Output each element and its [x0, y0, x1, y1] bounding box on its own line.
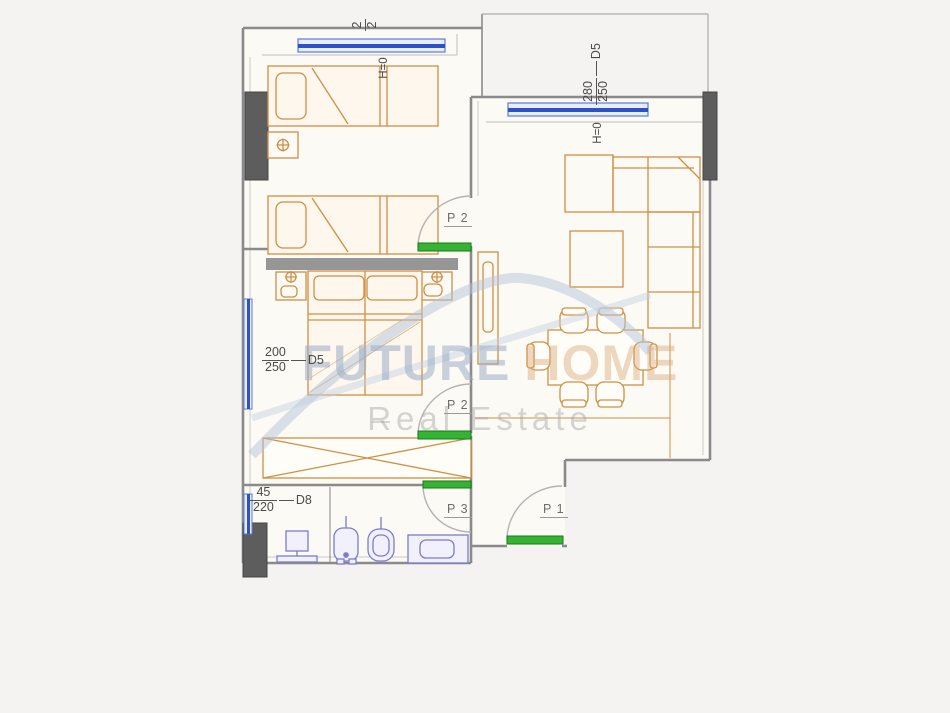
door-leaf-p1-entrance — [507, 536, 563, 544]
watermark-tagline: Real Estate — [290, 400, 670, 438]
dimension-numerator: 2 — [351, 19, 366, 32]
door-label-p3: P 3 — [444, 502, 472, 518]
door-leaf-p2-top — [418, 243, 471, 251]
door-label-p2-mid: P 2 — [444, 398, 472, 414]
single-bed-1 — [268, 66, 438, 126]
wall-bedroom2-north-band — [266, 258, 458, 270]
window-height-label: H=0 — [377, 51, 391, 85]
dimension-window-top-right: 280 250 D5 — [579, 39, 613, 109]
dimension-numerator: 280 — [582, 78, 597, 105]
dimension-denominator: 220 — [250, 501, 277, 515]
window-code-label: D5 — [589, 43, 603, 59]
dimension-window-top-left: 2 2 — [350, 12, 380, 38]
washbasin — [286, 531, 308, 551]
floor-plan-page: FUTUREHOME Real Estate 2 2 H=0 280 250 D… — [0, 0, 950, 713]
dimension-denominator: 250 — [597, 78, 611, 105]
window-height-label: H=0 — [591, 116, 605, 150]
dimension-leader-line — [291, 360, 306, 361]
dimension-leader-line — [596, 61, 597, 76]
door-leaf-p3 — [423, 481, 471, 488]
dimension-denominator: 250 — [262, 361, 289, 375]
door-label-p1: P 1 — [540, 502, 568, 518]
watermark-title: FUTUREHOME — [300, 334, 680, 392]
dimension-denominator: 2 — [366, 19, 380, 32]
dimension-window-left-bottom: 45 220 D8 — [250, 486, 312, 514]
dimension-numerator: 200 — [262, 346, 289, 361]
single-bed-2 — [268, 196, 438, 254]
window-code-label: D5 — [308, 353, 324, 367]
window-code-label: D8 — [296, 493, 312, 507]
dimension-window-left-mid: 200 250 D5 — [262, 346, 324, 374]
dimension-leader-line — [279, 500, 294, 501]
door-label-p2-top: P 2 — [444, 211, 472, 227]
dimension-numerator: 45 — [250, 486, 277, 501]
watermark-word-home: HOME — [524, 335, 678, 391]
watermark-word-future: FUTURE — [302, 335, 511, 391]
column-left-top — [245, 92, 268, 180]
column-right — [703, 92, 717, 180]
